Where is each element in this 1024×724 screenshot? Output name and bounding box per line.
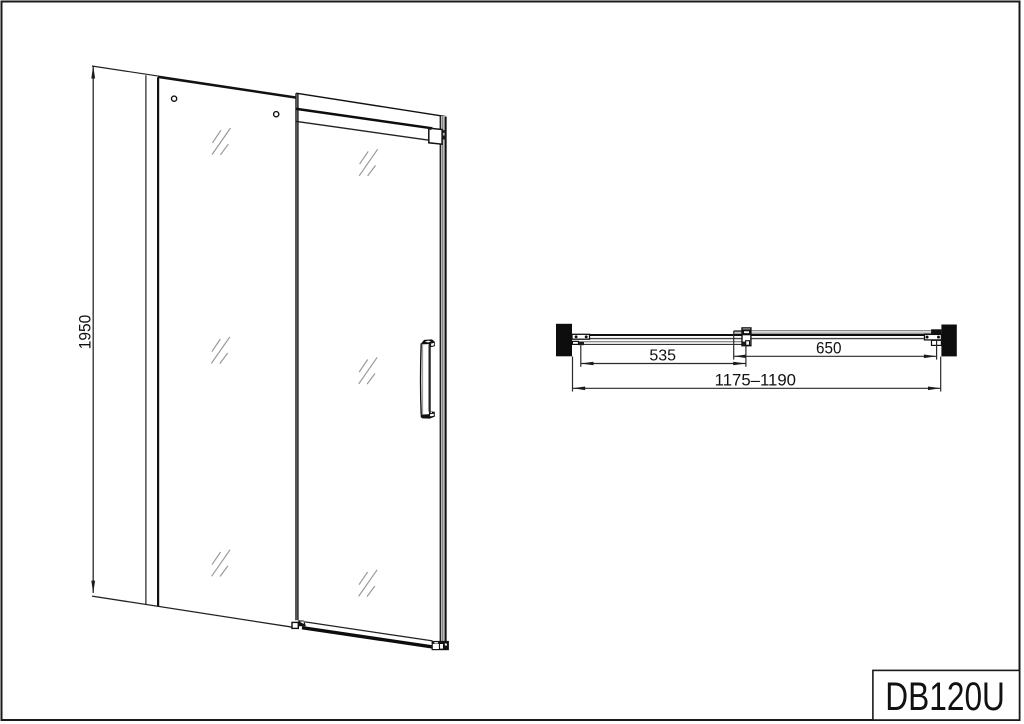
svg-text:1175–1190: 1175–1190 <box>715 370 796 389</box>
svg-text:650: 650 <box>816 339 842 358</box>
svg-text:DB120U: DB120U <box>885 675 1005 719</box>
svg-text:1950: 1950 <box>76 315 95 350</box>
svg-text:535: 535 <box>649 348 676 365</box>
